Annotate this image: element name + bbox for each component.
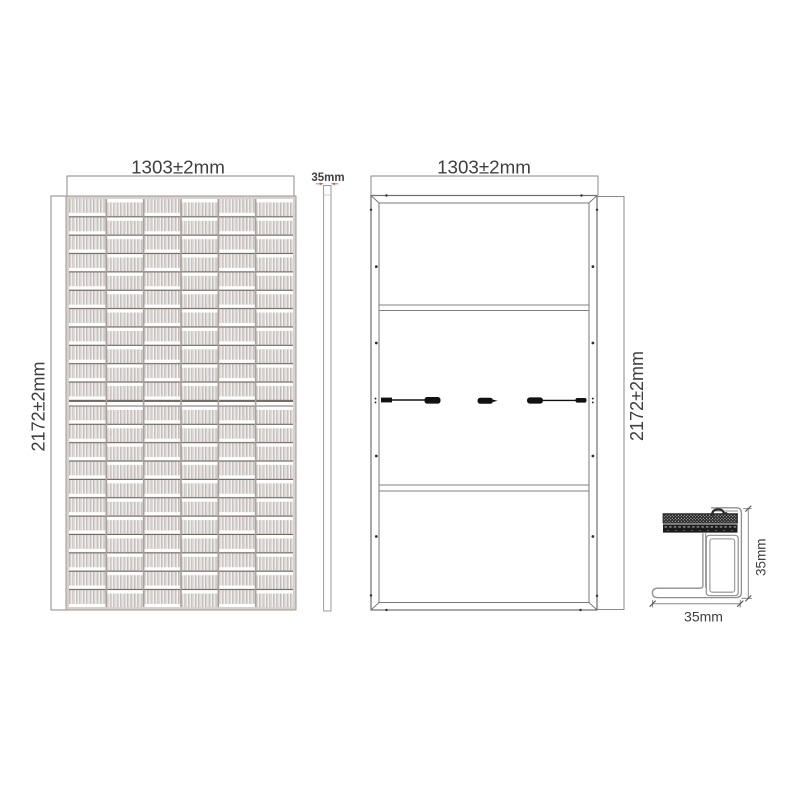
svg-text:35mm: 35mm [684,608,723,624]
svg-text:1303±2mm: 1303±2mm [437,157,531,178]
svg-text:2172±2mm: 2172±2mm [627,351,647,441]
svg-text:35mm: 35mm [754,538,769,576]
svg-text:35mm: 35mm [311,172,344,184]
svg-text:1303±2mm: 1303±2mm [131,157,225,178]
svg-text:2172±2mm: 2172±2mm [29,362,49,452]
